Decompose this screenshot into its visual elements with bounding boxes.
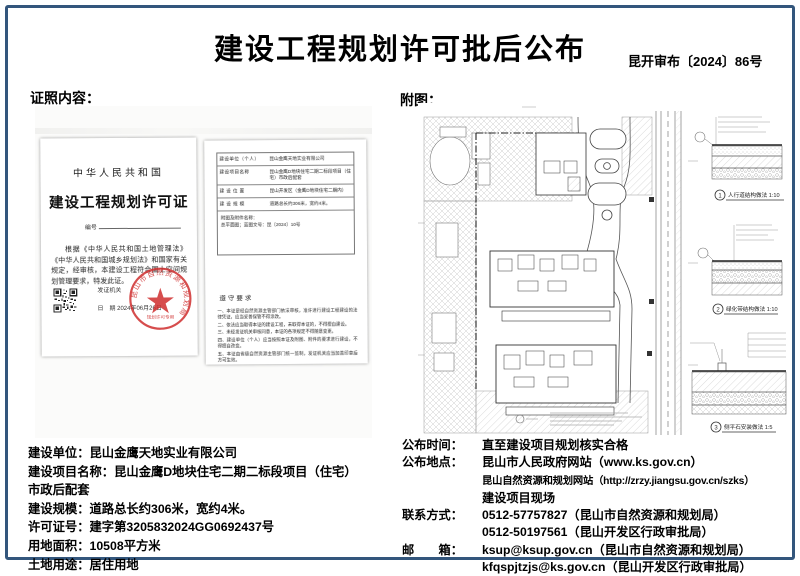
info-label: 建设项目名称：	[28, 465, 114, 479]
info-value: 市政后配套	[28, 483, 90, 497]
publication-info: 公布时间：直至建设项目规划核实合格 公布地点：昆山市人民政府网站（www.ks.…	[402, 437, 754, 576]
info-label: 许可证号：	[28, 520, 90, 534]
rule-item: 三、未经发证机关审核同意，本证的各项规定不得随意变更。	[218, 329, 358, 336]
info-value: 道路总长约306米，宽约4米。	[90, 502, 253, 516]
info-value: 昆山自然资源和规划网站（http://zrzy.jiangsu.gov.cn/s…	[482, 476, 754, 487]
info-label: 邮 箱：	[402, 542, 482, 559]
info-label: 用地面积：	[28, 539, 90, 553]
attachment-line: 总平面图；蓝图文号：昆〔2024〕10号	[221, 221, 351, 229]
seal-star	[147, 288, 174, 314]
row-label: 建 设 规 模	[218, 198, 268, 210]
info-line: 用地面积：10508平方米	[28, 537, 357, 556]
issuer-label: 发证机关	[97, 285, 121, 294]
rules-list: 一、本证是经自然资源主管部门依法审核，准许进行建设工程建设的法律凭证，应当妥善保…	[217, 308, 357, 365]
info-line: 公布时间：直至建设项目规划核实合格	[402, 437, 754, 454]
permit-detail-table: 建设单位（个人） 昆山金鹰天地实业有限公司 建设项目名称 昆山金鹰D地块住宅二期…	[216, 152, 355, 256]
row-label: 建设项目名称	[217, 166, 267, 184]
info-value: ksup@ksup.gov.cn（昆山市自然资源和规划局）	[482, 543, 751, 557]
certificate-scan: 中华人民共和国 建设工程规划许可证 编号 根据《中华人民共和国土地管理法》《中华…	[35, 106, 372, 438]
road-name-marks	[647, 197, 654, 356]
announcement-number: 昆开审布〔2024〕86号	[628, 51, 762, 70]
rule-item: 五、本证由省级自然资源主管部门统一监制，发证机关应当加盖印章后方可生效。	[218, 350, 358, 363]
info-value: 直至建设项目规划核实合格	[482, 438, 628, 452]
info-value: 建字第3205832024GG0692437号	[90, 520, 275, 534]
rule-item: 四、建设单位（个人）应当按照本证及附图、附件的要求进行建设，不得擅自改变。	[218, 337, 358, 350]
rule-item: 一、本证是经自然资源主管部门依法审核，准许进行建设工程建设的法律凭证，应当妥善保…	[217, 308, 357, 321]
info-line: 邮 箱：ksup@ksup.gov.cn（昆山市自然资源和规划局）	[402, 542, 754, 559]
table-row: 建设单位（个人） 昆山金鹰天地实业有限公司	[217, 153, 353, 167]
info-line: 建设项目名称：昆山金鹰D地块住宅二期二标段项目（住宅）	[28, 463, 357, 482]
info-label: 公布地点：	[402, 454, 482, 471]
info-line: 建设规模：道路总长约306米，宽约4米。	[28, 500, 357, 519]
info-value: 0512-50197561（昆山开发区行政审批局）	[482, 525, 714, 539]
info-value: 0512-57757827（昆山市自然资源和规划局）	[482, 508, 726, 522]
certificate-number-label: 编号	[85, 225, 97, 231]
certificate-number-blank	[99, 222, 181, 230]
detail-number: 2	[716, 308, 720, 314]
seal-sub-text: 规划许可专用	[147, 314, 175, 321]
detail-caption: 侧平石安装做法 1:5	[724, 423, 773, 431]
info-line: 昆山自然资源和规划网站（http://zrzy.jiangsu.gov.cn/s…	[402, 472, 754, 490]
row-label: 建设单位（个人）	[217, 153, 267, 165]
permit-detail-page: 建设单位（个人） 昆山金鹰天地实业有限公司 建设项目名称 昆山金鹰D地块住宅二期…	[204, 139, 368, 364]
info-label: 建设单位：	[28, 446, 90, 460]
attachment-note: 附图及附件名称： 总平面图；蓝图文号：昆〔2024〕10号	[218, 211, 354, 255]
row-value: 道路总长约306米，宽约4米。	[268, 198, 354, 211]
info-value: 建设项目现场	[482, 491, 555, 505]
info-line: 联系方式：0512-57757827（昆山市自然资源和规划局）	[402, 507, 754, 524]
info-line: 许可证号：建字第3205832024GG0692437号	[28, 518, 357, 537]
info-label: 建设规模：	[28, 502, 90, 516]
info-line: 建设单位：昆山金鹰天地实业有限公司	[28, 444, 357, 463]
certificate-title: 建设工程规划许可证	[41, 190, 197, 212]
official-seal: 昆山市自然资源和规划局 规划许可专用	[127, 265, 193, 331]
detail-section-1: 1 人行道结构做法 1:10	[695, 117, 784, 200]
qr-code	[53, 288, 77, 312]
certificate-number-line: 编号	[85, 221, 197, 231]
row-value: 昆山金鹰天地实业有限公司	[267, 153, 353, 166]
info-value: 昆山金鹰天地实业有限公司	[90, 446, 238, 460]
site-plan-drawing: 1 人行道结构做法 1:10 2 绿化带结构做法 1:10	[418, 103, 790, 441]
info-line: 市政后配套	[28, 481, 357, 500]
info-line: 0512-50197561（昆山开发区行政审批局）	[402, 524, 754, 541]
site-plan: 1 人行道结构做法 1:10 2 绿化带结构做法 1:10	[418, 103, 790, 441]
table-row: 建 设 位 置 昆山开发区（金鹰D地块住宅二期内）	[218, 185, 354, 199]
info-value: 10508平方米	[90, 539, 161, 553]
info-value: 昆山金鹰D地块住宅二期二标段项目（住宅）	[114, 465, 357, 479]
detail-caption: 人行道结构做法 1:10	[728, 191, 780, 199]
project-info: 建设单位：昆山金鹰天地实业有限公司 建设项目名称：昆山金鹰D地块住宅二期二标段项…	[28, 444, 357, 574]
certificate-country: 中华人民共和国	[40, 163, 196, 179]
rule-item: 二、依法应当取得本证的建设工程，未取得本证的，不得擅自建设。	[217, 321, 357, 328]
row-label: 建 设 位 置	[218, 185, 268, 197]
info-line: kfqspjtzjs@ks.gov.cn（昆山开发区行政审批局）	[402, 559, 754, 576]
info-label: 公布时间：	[402, 437, 482, 454]
info-line: 公布地点：昆山市人民政府网站（www.ks.gov.cn）	[402, 454, 754, 471]
issue-date-label: 日 期	[97, 306, 115, 312]
detail-caption: 绿化带结构做法 1:10	[726, 305, 778, 313]
detail-number: 3	[714, 426, 718, 432]
row-value: 昆山开发区（金鹰D地块住宅二期内）	[268, 185, 354, 198]
detail-section-3: 3 侧平石安装做法 1:5	[690, 333, 786, 432]
main-plan	[418, 107, 698, 435]
info-value: 昆山市人民政府网站（www.ks.gov.cn）	[482, 455, 703, 469]
info-value: kfqspjtzjs@ks.gov.cn（昆山开发区行政审批局）	[482, 560, 752, 574]
permit-certificate-page: 中华人民共和国 建设工程规划许可证 编号 根据《中华人民共和国土地管理法》《中华…	[40, 137, 198, 356]
table-row: 建设项目名称 昆山金鹰D地块住宅二期二标段项目（住宅）市政后配套	[217, 166, 353, 186]
rules-title: 遵守要求	[219, 292, 253, 302]
section-label-certificate: 证照内容：	[30, 88, 100, 108]
info-label: 联系方式：	[402, 507, 482, 524]
detail-section-2: 2 绿化带结构做法 1:10	[698, 225, 782, 314]
table-row: 建 设 规 模 道路总长约306米，宽约4米。	[218, 198, 354, 212]
row-value: 昆山金鹰D地块住宅二期二标段项目（住宅）市政后配套	[267, 166, 353, 185]
detail-number: 1	[718, 194, 722, 200]
info-line: 建设项目现场	[402, 490, 754, 507]
